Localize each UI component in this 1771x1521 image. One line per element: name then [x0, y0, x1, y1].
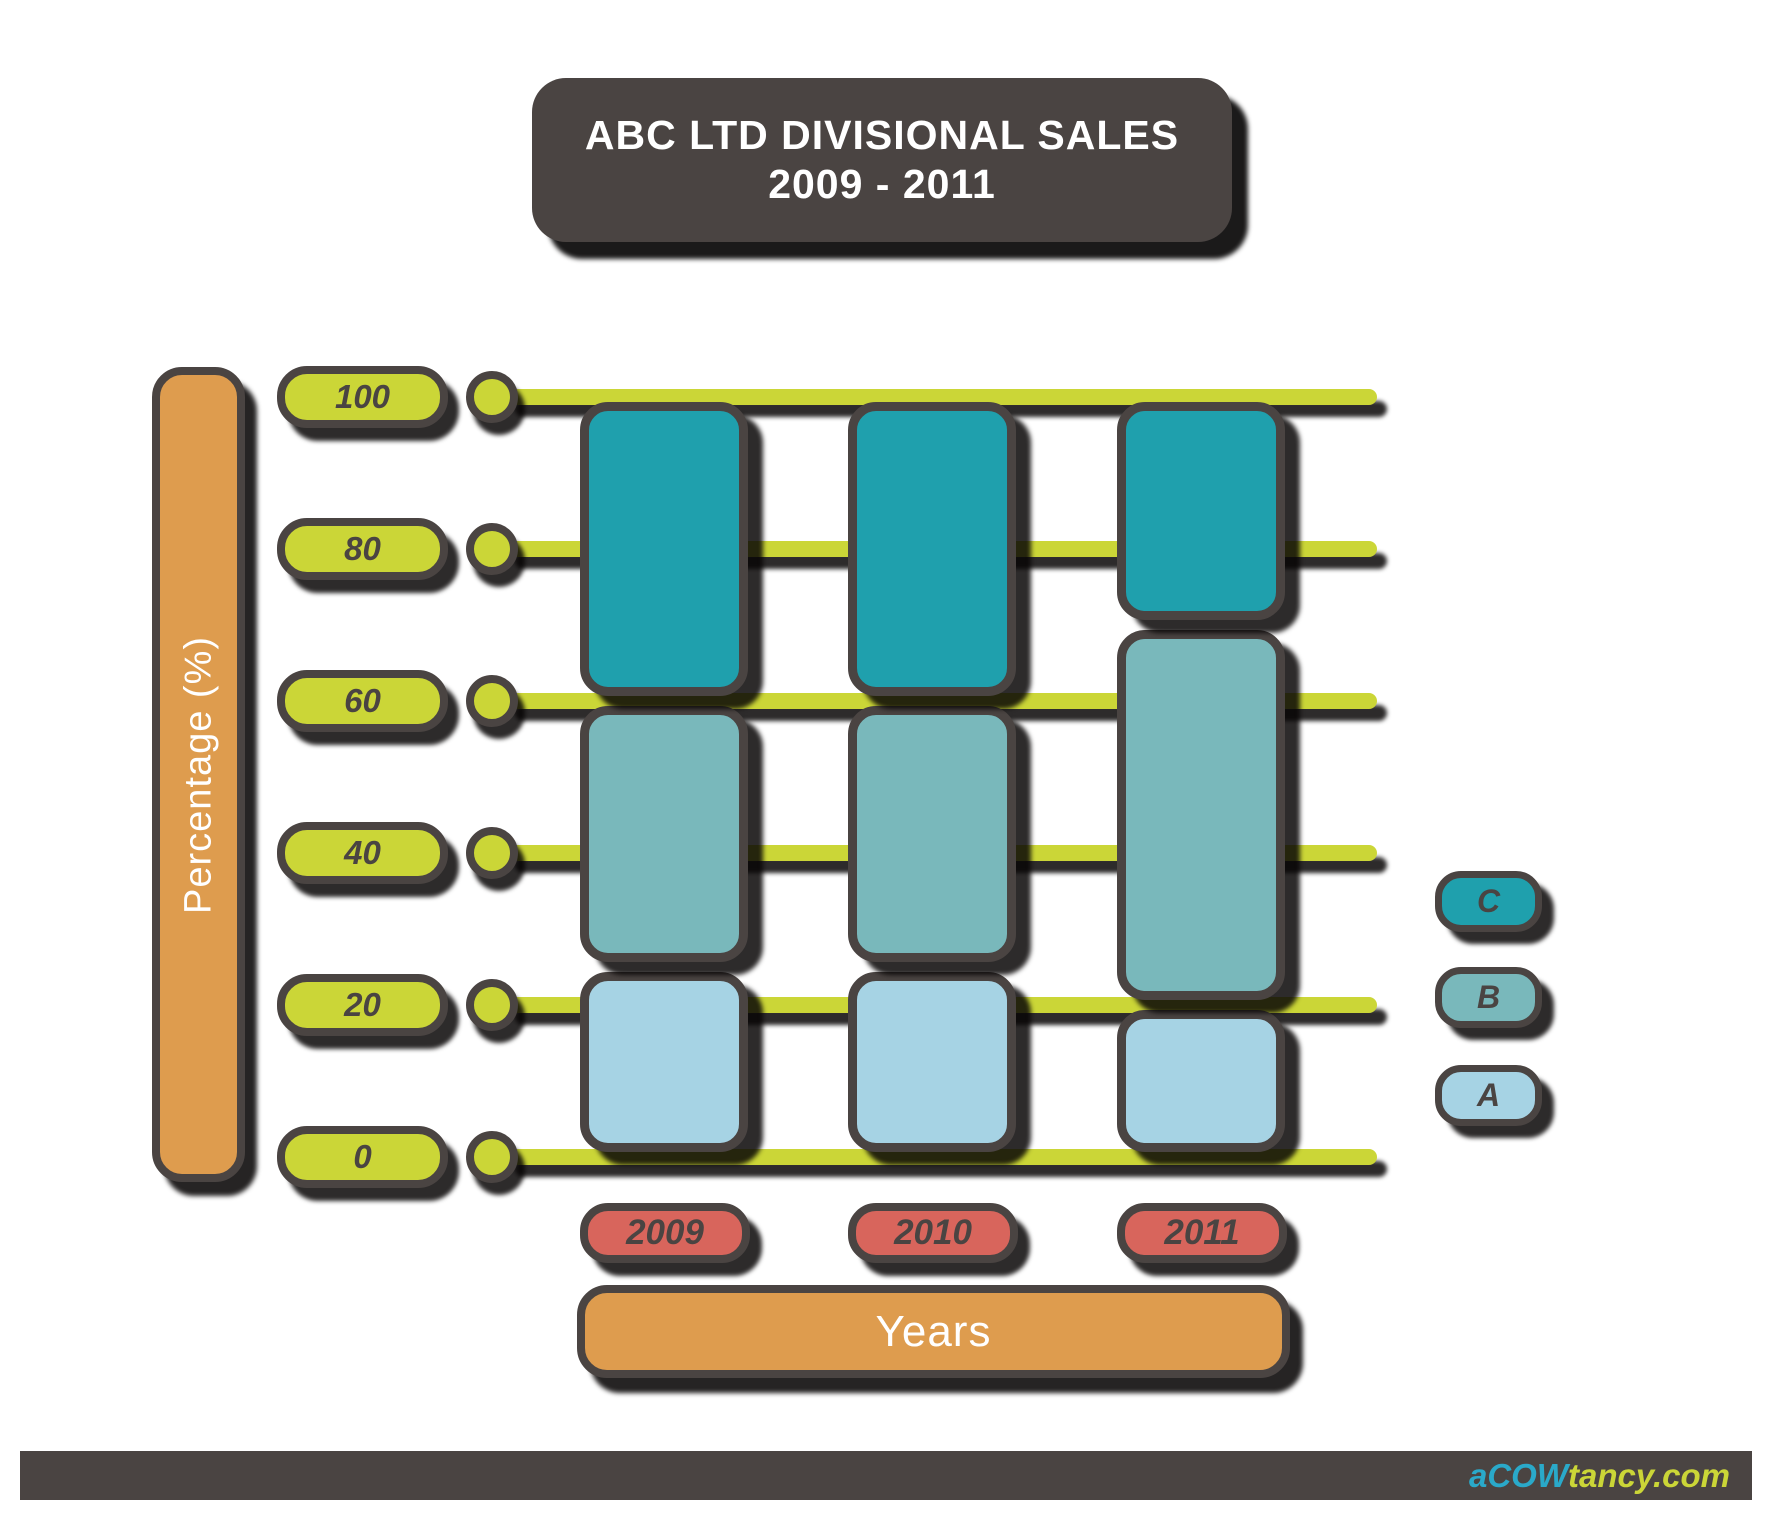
footer-bar: aCOWtancy.com	[20, 1451, 1752, 1500]
y-tick-pill-40: 40	[277, 822, 448, 884]
grid-dot-40	[466, 827, 518, 879]
brand-logo: aCOWtancy.com	[1469, 1457, 1730, 1495]
grid-dot-60	[466, 675, 518, 727]
y-tick-pill-60: 60	[277, 670, 448, 732]
y-axis-label: Percentage (%)	[177, 635, 220, 913]
grid-dot-20	[466, 979, 518, 1031]
page-title-line2: 2009 - 2011	[768, 160, 996, 209]
legend-item-B: B	[1435, 967, 1542, 1028]
brand-logo-prefix: a	[1469, 1457, 1487, 1494]
page-title-line1: ABC LTD DIVISIONAL SALES	[585, 111, 1179, 160]
grid-dot-0	[466, 1131, 518, 1183]
grid-dot-80	[466, 523, 518, 575]
bar-2011-segment-A	[1117, 1010, 1285, 1152]
x-tick-pill-2011: 2011	[1117, 1203, 1287, 1263]
y-tick-pill-20: 20	[277, 974, 448, 1036]
bar-2011-segment-C	[1117, 402, 1285, 620]
bar-2009-segment-C	[580, 402, 748, 696]
title-box: ABC LTD DIVISIONAL SALES 2009 - 2011	[532, 78, 1232, 242]
legend-item-A: A	[1435, 1065, 1542, 1126]
bar-2010-segment-C	[848, 402, 1016, 696]
bar-2011-segment-B	[1117, 630, 1285, 1000]
y-tick-pill-0: 0	[277, 1126, 448, 1188]
legend-item-C: C	[1435, 871, 1542, 932]
x-axis-label: Years	[876, 1307, 992, 1357]
x-tick-pill-2010: 2010	[848, 1203, 1018, 1263]
bar-2009-segment-B	[580, 706, 748, 962]
bar-2010-segment-B	[848, 706, 1016, 962]
y-tick-pill-100: 100	[277, 366, 448, 428]
grid-dot-100	[466, 371, 518, 423]
x-tick-pill-2009: 2009	[580, 1203, 750, 1263]
chart-canvas: ABC LTD DIVISIONAL SALES 2009 - 2011 Per…	[0, 0, 1771, 1521]
brand-logo-suffix: tancy.com	[1568, 1457, 1730, 1494]
y-tick-pill-80: 80	[277, 518, 448, 580]
bar-2010-segment-A	[848, 972, 1016, 1152]
brand-logo-mid: COW	[1487, 1457, 1568, 1494]
y-axis-label-bar: Percentage (%)	[152, 367, 245, 1182]
bar-2009-segment-A	[580, 972, 748, 1152]
x-axis-label-bar: Years	[577, 1285, 1290, 1378]
